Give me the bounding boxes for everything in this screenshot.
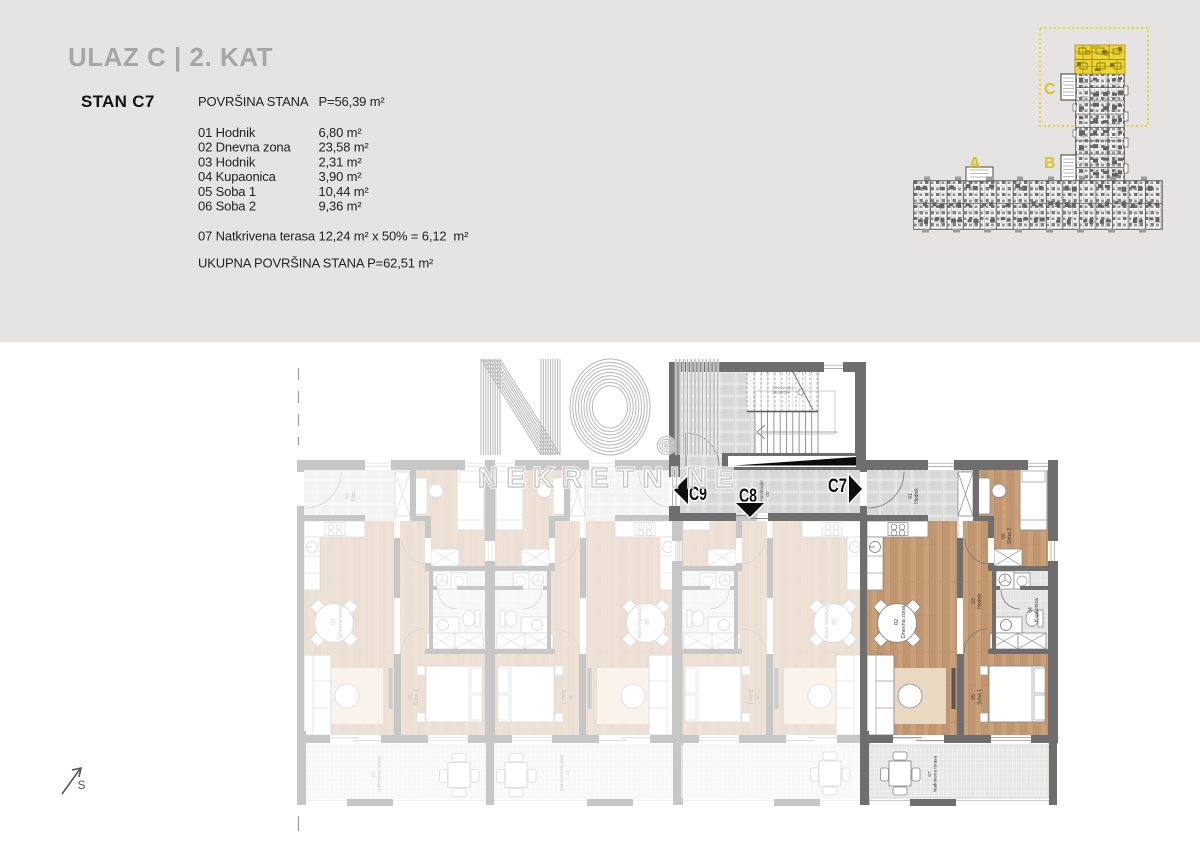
svg-text:S: S (78, 778, 86, 792)
svg-text:Hodnik: Hodnik (977, 593, 983, 609)
svg-text:ULAZ C | 2. KAT: ULAZ C | 2. KAT (68, 42, 273, 72)
svg-text:Soba 1: Soba 1 (747, 689, 753, 705)
svg-text:Soba 1: Soba 1 (977, 689, 983, 705)
svg-text:UKUPNA POVRŠINA STANA P=62,51: UKUPNA POVRŠINA STANA P=62,51 m² (198, 256, 434, 271)
svg-text:Dnevna zona: Dnevna zona (901, 605, 907, 638)
svg-text:02 Dnevna zona: 02 Dnevna zona (198, 140, 292, 155)
svg-text:Ulaz: Ulaz (351, 491, 357, 502)
svg-text:Hodnik: Hodnik (914, 488, 920, 504)
svg-text:2,31 m²: 2,31 m² (319, 154, 363, 169)
svg-text:NEKRETNINE: NEKRETNINE (478, 462, 742, 493)
svg-text:02: 02 (894, 619, 900, 625)
svg-text:9,36 m²: 9,36 m² (319, 199, 363, 214)
svg-text:Soba 1: Soba 1 (560, 689, 566, 705)
svg-text:03 Hodnik: 03 Hodnik (198, 154, 256, 169)
svg-text:Kupaonica: Kupaonica (1034, 598, 1040, 622)
svg-text:C7: C7 (828, 476, 847, 497)
svg-text:01 Hodnik: 01 Hodnik (198, 125, 256, 140)
svg-text:07: 07 (371, 771, 376, 777)
svg-text:Dnevna zona: Dnevna zona (823, 606, 829, 639)
svg-text:A: A (969, 155, 981, 172)
svg-text:17x17,2=29,2: 17x17,2=29,2 (772, 386, 794, 390)
svg-text:02: 02 (331, 619, 337, 625)
svg-text:07: 07 (565, 770, 570, 776)
svg-text:02: 02 (830, 619, 836, 625)
svg-text:07: 07 (927, 771, 932, 777)
svg-text:Natkrivena terasa: Natkrivena terasa (933, 756, 938, 792)
svg-text:3,90 m²: 3,90 m² (319, 169, 363, 184)
svg-text:00: 00 (765, 491, 770, 497)
svg-text:06 Soba 2: 06 Soba 2 (198, 199, 256, 214)
svg-text:Natkrivena terasa: Natkrivena terasa (377, 756, 382, 792)
svg-text:12,24 m² x 50% = 6,12 m²: 12,24 m² x 50% = 6,12 m² (319, 229, 470, 244)
svg-text:Dnevna zona: Dnevna zona (338, 605, 344, 638)
svg-text:Natkrivena terasa: Natkrivena terasa (560, 755, 565, 791)
svg-text:07 Natkrivena terasa: 07 Natkrivena terasa (198, 229, 316, 244)
svg-text:C: C (1044, 81, 1056, 98)
svg-text:04 Kupaonica: 04 Kupaonica (198, 169, 277, 184)
svg-text:POVRŠINA STANA: POVRŠINA STANA (198, 94, 309, 109)
svg-text:Soba 1: Soba 1 (414, 689, 420, 705)
svg-text:B: B (1044, 155, 1056, 172)
svg-text:05 Soba 1: 05 Soba 1 (198, 184, 256, 199)
svg-text:23,58 m²: 23,58 m² (319, 140, 370, 155)
svg-text:STAN C7: STAN C7 (81, 92, 155, 111)
svg-text:6,80 m²: 6,80 m² (319, 125, 363, 140)
svg-text:P=56,39 m²: P=56,39 m² (319, 94, 386, 109)
svg-text:Soba 2: Soba 2 (1007, 528, 1013, 544)
svg-text:10,44 m²: 10,44 m² (319, 184, 370, 199)
svg-text:Dnevna zona: Dnevna zona (636, 606, 642, 639)
svg-text:02: 02 (643, 619, 649, 625)
